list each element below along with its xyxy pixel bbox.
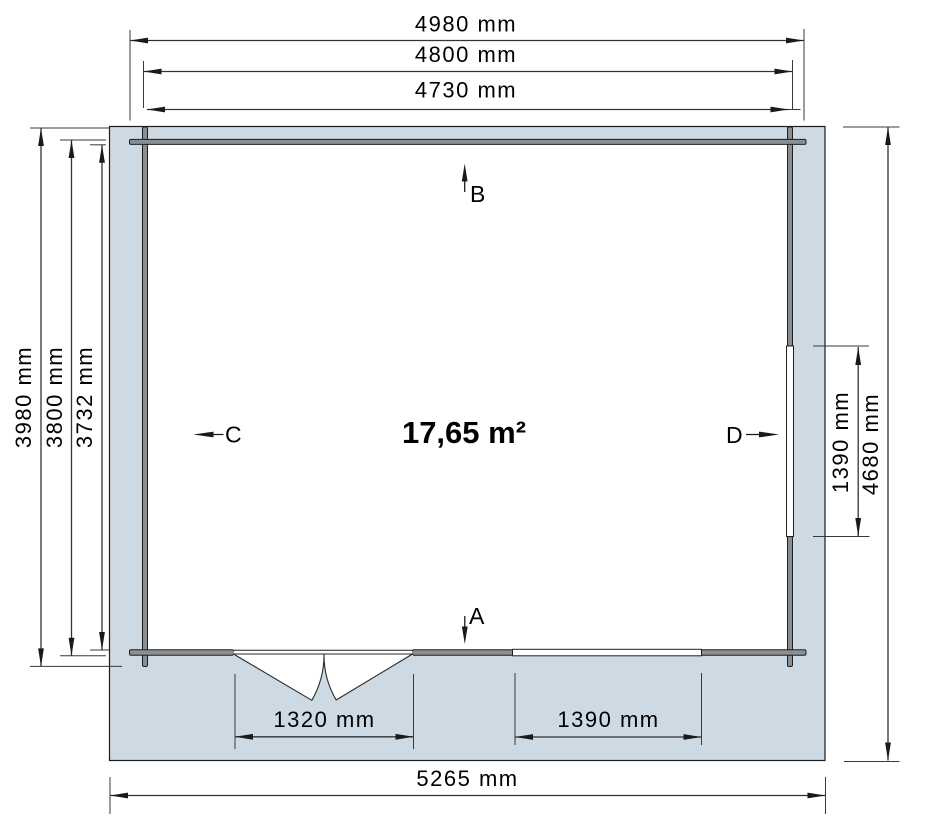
svg-text:C: C <box>225 422 242 448</box>
svg-text:B: B <box>470 181 485 207</box>
svg-text:3980 mm: 3980 mm <box>11 346 36 448</box>
svg-text:4680 mm: 4680 mm <box>858 393 883 495</box>
svg-text:4730 mm: 4730 mm <box>415 78 517 103</box>
svg-text:1390 mm: 1390 mm <box>828 391 853 493</box>
svg-text:1320 mm: 1320 mm <box>273 707 375 732</box>
svg-text:4800 mm: 4800 mm <box>415 42 517 67</box>
svg-text:17,65 m²: 17,65 m² <box>402 415 526 450</box>
svg-text:D: D <box>726 422 743 448</box>
svg-text:4980 mm: 4980 mm <box>415 12 517 37</box>
svg-text:A: A <box>469 603 485 629</box>
svg-text:1390 mm: 1390 mm <box>557 707 659 732</box>
svg-text:5265 mm: 5265 mm <box>416 766 518 791</box>
svg-text:3732 mm: 3732 mm <box>72 346 97 448</box>
svg-text:3800 mm: 3800 mm <box>42 346 67 448</box>
